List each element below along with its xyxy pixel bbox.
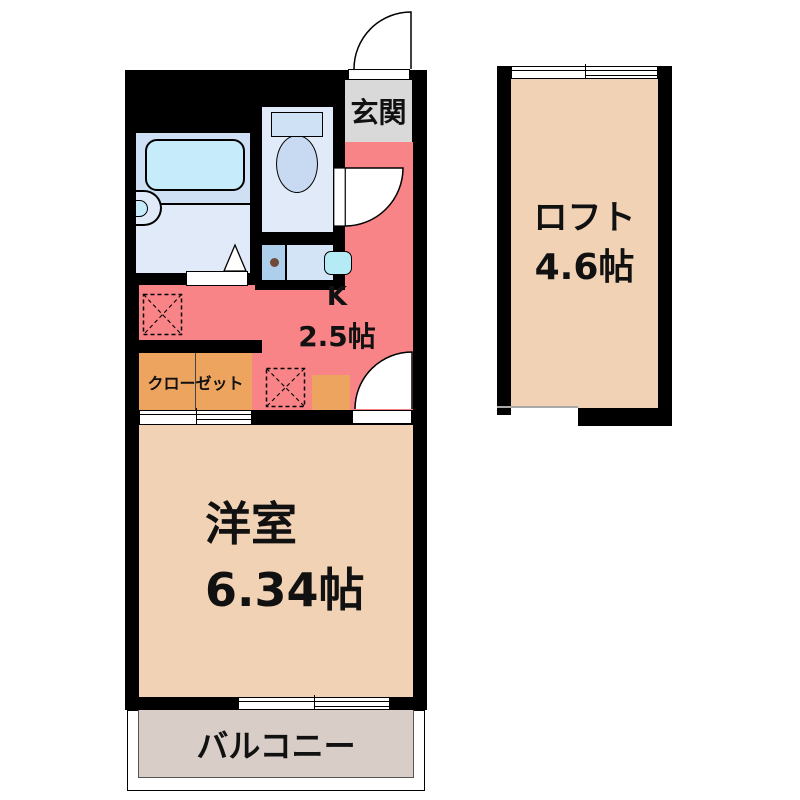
balcony-outline: バルコニー <box>127 710 425 791</box>
bathroom-door-icon <box>222 243 248 273</box>
entrance-door-leaf <box>348 69 410 80</box>
kitchen-sink-cell <box>287 245 333 280</box>
loft-right-wall <box>658 66 672 426</box>
kitchen-sink-unit <box>262 245 333 280</box>
toilet-door-swing-icon <box>333 166 405 228</box>
kitchen-label: K <box>262 282 412 312</box>
window-line <box>314 706 389 707</box>
loft-label-block: ロフト 4.6帖 <box>511 79 658 293</box>
toilet-tank <box>271 112 323 137</box>
closet-label: クローゼット <box>147 370 243 394</box>
balcony-label: バルコニー <box>196 721 355 767</box>
bathtub <box>145 139 245 191</box>
toilet-bowl <box>276 135 318 193</box>
kitchen-burner-cell <box>262 245 287 280</box>
room-door-leaf <box>352 410 412 424</box>
wash-basin-bowl <box>136 200 148 217</box>
loft-size-label: 4.6帖 <box>511 243 658 293</box>
loft-label: ロフト <box>511 193 658 243</box>
loft-bottom-wall <box>578 408 672 426</box>
sink-icon <box>324 251 352 275</box>
balcony: バルコニー <box>138 710 414 778</box>
burner-icon <box>270 258 279 267</box>
room-door-swing-icon <box>350 350 414 411</box>
toilet-room <box>262 107 333 232</box>
balcony-window <box>238 697 390 710</box>
window-line <box>585 75 658 76</box>
entrance-label: 玄関 <box>350 91 406 131</box>
western-room-label-block: 洋室 6.34帖 <box>205 491 365 623</box>
closet-sliding-doors <box>139 410 252 425</box>
closet-wall <box>125 340 262 353</box>
western-room-label: 洋室 <box>205 491 365 557</box>
kitchen-size-label: 2.5帖 <box>262 315 412 355</box>
entrance-door-swing-icon <box>346 5 416 71</box>
loft-window <box>511 66 658 79</box>
floor-plan: 玄関 K 2.5帖 クローゼット 洋室 6 <box>0 0 800 800</box>
western-room: 洋室 6.34帖 <box>139 425 413 697</box>
kitchen-label-block: K 2.5帖 <box>262 282 412 355</box>
washing-machine-space-icon <box>142 293 183 336</box>
loft: ロフト 4.6帖 <box>511 79 658 408</box>
counter-box <box>312 375 350 410</box>
closet: クローゼット <box>139 353 252 410</box>
loft-open-edge-line <box>497 406 578 408</box>
bathroom <box>136 133 250 273</box>
bathroom-door-opening <box>186 271 248 286</box>
western-room-size-label: 6.34帖 <box>205 557 365 623</box>
door-line <box>196 419 252 420</box>
entrance-area: 玄関 <box>345 80 412 142</box>
refrigerator-space-icon <box>265 367 306 408</box>
loft-left-wall <box>497 66 511 415</box>
